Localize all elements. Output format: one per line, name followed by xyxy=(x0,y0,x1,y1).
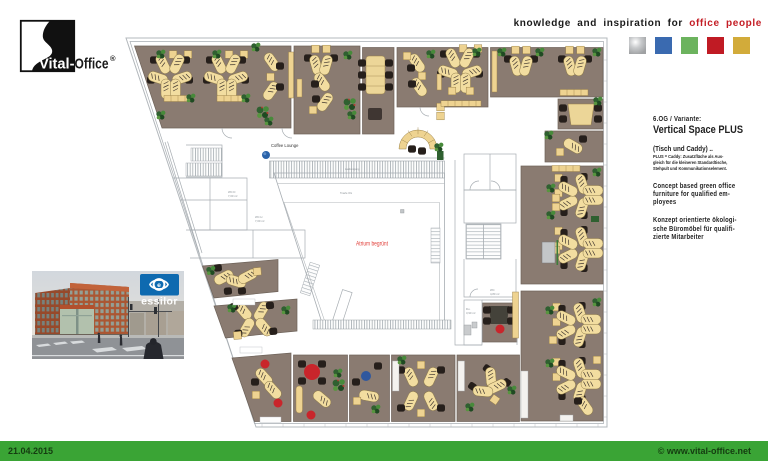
svg-text:3,90 m²: 3,90 m² xyxy=(466,311,476,315)
svg-text:essilor: essilor xyxy=(141,296,178,308)
svg-text:Laubengang: Laubengang xyxy=(345,167,360,171)
svg-text:®: ® xyxy=(110,54,116,63)
svg-text:Office: Office xyxy=(75,56,109,73)
svg-text:4,80 m²: 4,80 m² xyxy=(490,292,500,296)
svg-text:e: e xyxy=(157,282,161,289)
svg-text:7,00 m²: 7,00 m² xyxy=(228,194,238,198)
svg-text:Traufe OG: Traufe OG xyxy=(340,191,352,195)
svg-text:Vital-: Vital- xyxy=(39,56,75,73)
svg-text:Coffee Lounge: Coffee Lounge xyxy=(271,143,299,148)
svg-text:7,00 m²: 7,00 m² xyxy=(255,219,265,223)
svg-text:Atrium begrünt: Atrium begrünt xyxy=(356,241,388,248)
